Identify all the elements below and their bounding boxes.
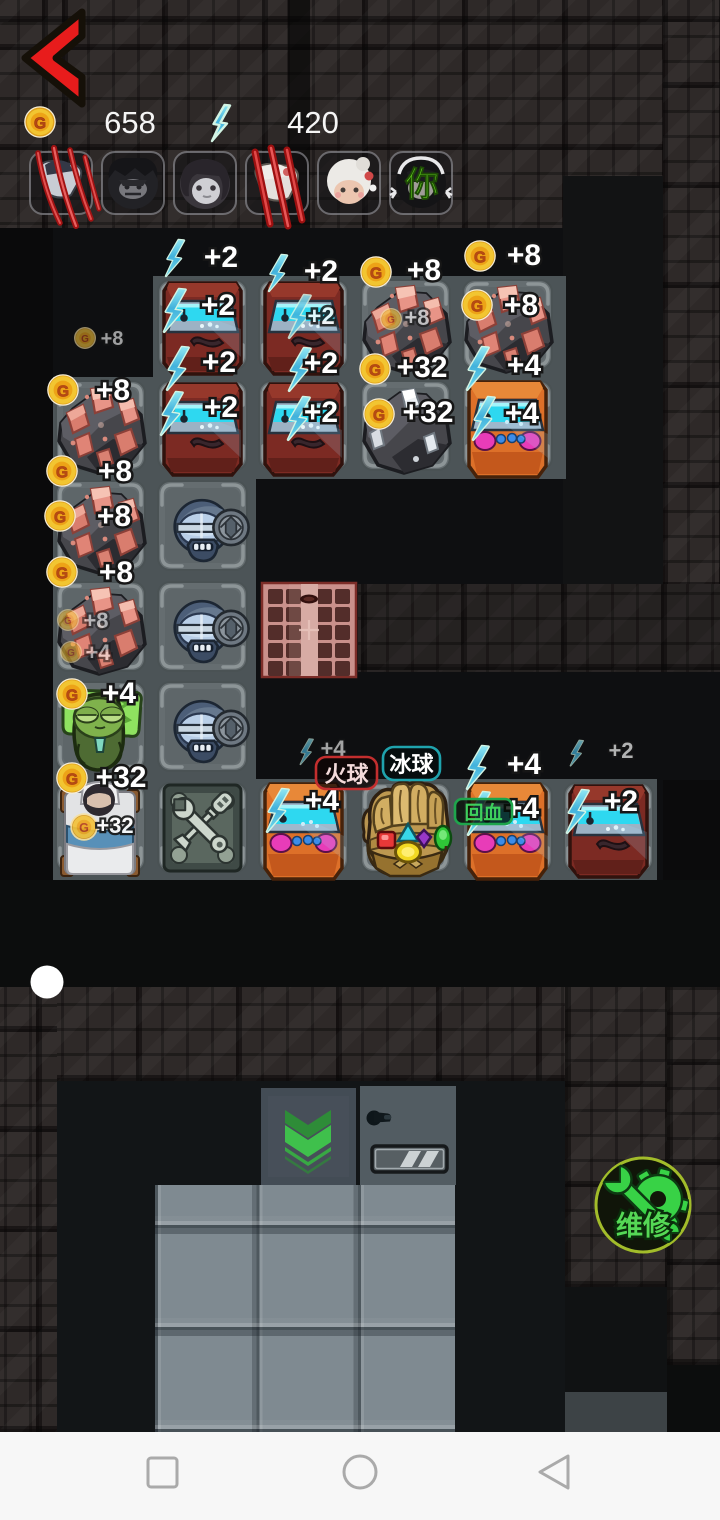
svg-text:+2: +2 xyxy=(204,391,238,424)
svg-text:火球: 火球 xyxy=(324,762,369,787)
svg-text:+2: +2 xyxy=(608,738,633,763)
svg-text:+2: +2 xyxy=(304,396,338,429)
svg-text:+8: +8 xyxy=(404,305,429,330)
svg-text:420: 420 xyxy=(287,105,339,140)
svg-text:+8: +8 xyxy=(504,289,538,322)
svg-text:658: 658 xyxy=(104,105,156,140)
svg-text:+8: +8 xyxy=(97,500,131,533)
svg-text:+32: +32 xyxy=(403,396,454,429)
svg-text:+2: +2 xyxy=(304,347,338,380)
svg-text:+2: +2 xyxy=(604,785,638,818)
svg-text:+8: +8 xyxy=(98,455,132,488)
svg-text:+8: +8 xyxy=(507,239,541,272)
svg-text:+2: +2 xyxy=(202,346,236,379)
svg-text:+2: +2 xyxy=(307,303,334,330)
svg-text:+32: +32 xyxy=(96,813,133,838)
svg-text:+2: +2 xyxy=(204,241,238,274)
svg-text:+4: +4 xyxy=(507,748,542,781)
svg-text:+8: +8 xyxy=(407,254,441,287)
svg-text:+32: +32 xyxy=(96,761,147,794)
svg-text:回血: 回血 xyxy=(464,801,502,824)
svg-text:+2: +2 xyxy=(304,255,338,288)
svg-text:+8: +8 xyxy=(101,328,124,350)
svg-text:+4: +4 xyxy=(85,640,111,665)
svg-text:+4: +4 xyxy=(102,677,137,710)
svg-text:冰球: 冰球 xyxy=(389,752,434,777)
svg-text:你: 你 xyxy=(404,166,439,204)
svg-text:+2: +2 xyxy=(201,289,235,322)
svg-text:+8: +8 xyxy=(96,374,130,407)
svg-text:+4: +4 xyxy=(507,349,542,382)
svg-text:+8: +8 xyxy=(83,608,108,633)
svg-text:+4: +4 xyxy=(505,397,540,430)
svg-text:+32: +32 xyxy=(397,351,448,384)
svg-text:+8: +8 xyxy=(99,556,133,589)
svg-text:维修: 维修 xyxy=(616,1211,671,1241)
